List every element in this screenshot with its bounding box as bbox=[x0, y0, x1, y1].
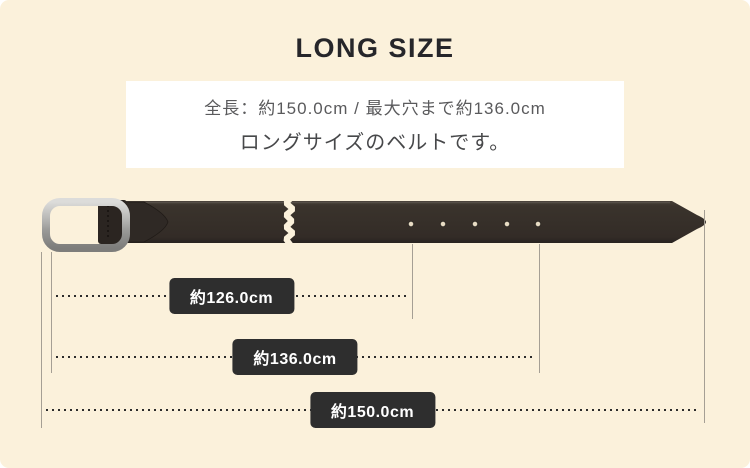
guide-line-belt-tip bbox=[704, 210, 705, 423]
measurement-label: 約136.0cm bbox=[232, 339, 357, 375]
size-guide-panel: LONG SIZE 全長：約150.0cm / 最大穴まで約136.0cm ロン… bbox=[0, 0, 750, 468]
belt-hole bbox=[440, 221, 445, 226]
measurement-row-to-first-hole: 約126.0cm bbox=[51, 280, 412, 312]
belt-hole bbox=[408, 221, 413, 226]
measurement-row-total-length: 約150.0cm bbox=[41, 394, 704, 426]
size-summary-line: 全長：約150.0cm / 最大穴まで約136.0cm bbox=[204, 94, 546, 119]
measurement-label: 約126.0cm bbox=[169, 278, 294, 314]
measurement-row-to-max-hole: 約136.0cm bbox=[51, 341, 539, 373]
belt-hole bbox=[504, 221, 509, 226]
guide-line-max-hole bbox=[539, 244, 540, 373]
size-summary-box: 全長：約150.0cm / 最大穴まで約136.0cm ロングサイズのベルトです… bbox=[126, 81, 624, 168]
size-summary-caption: ロングサイズのベルトです。 bbox=[240, 126, 510, 155]
belt-strap bbox=[100, 201, 706, 243]
belt-hole bbox=[472, 221, 477, 226]
guide-line-first-hole bbox=[412, 244, 413, 319]
belt-hole bbox=[535, 221, 540, 226]
page-title: LONG SIZE bbox=[0, 33, 750, 64]
measurement-label: 約150.0cm bbox=[310, 392, 435, 428]
belt-illustration bbox=[30, 190, 720, 260]
